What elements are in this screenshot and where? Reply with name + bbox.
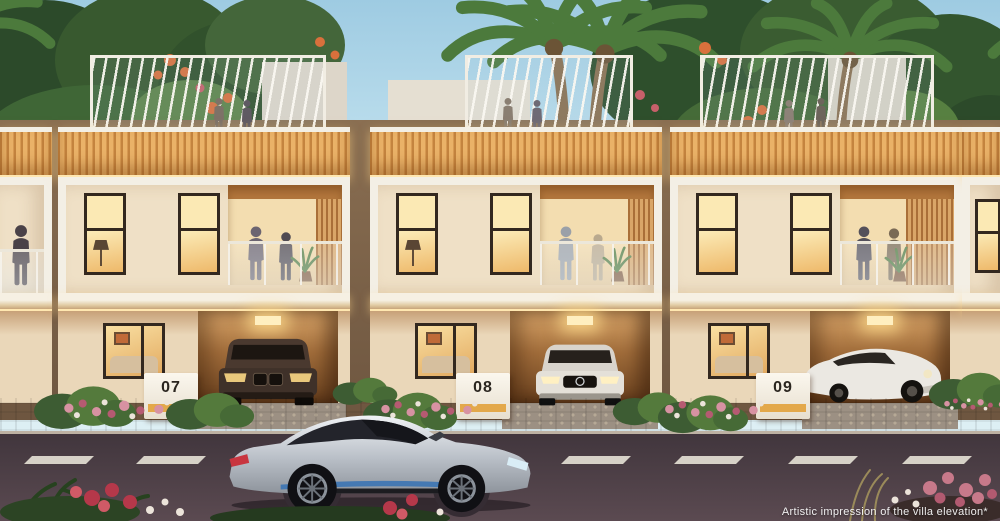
upper-floor bbox=[370, 177, 662, 293]
carport-light bbox=[255, 316, 281, 325]
balcony bbox=[540, 185, 654, 285]
upper-window-right bbox=[790, 193, 832, 275]
upper-window-left bbox=[84, 193, 126, 275]
rooftop-pergola bbox=[465, 55, 633, 127]
wood-fascia bbox=[962, 127, 1000, 177]
glass-railing bbox=[840, 241, 954, 285]
upper-window bbox=[975, 199, 1000, 273]
upper-floor bbox=[670, 177, 962, 293]
floor-divider bbox=[0, 293, 52, 311]
wood-fascia bbox=[0, 127, 52, 177]
upper-floor bbox=[962, 177, 1000, 293]
disclaimer-caption: Artistic impression of the villa elevati… bbox=[782, 506, 988, 518]
upper-floor bbox=[58, 177, 350, 293]
foreground-flowers-left bbox=[0, 450, 520, 521]
upper-window-right bbox=[178, 193, 220, 275]
glass-railing bbox=[540, 241, 654, 285]
balcony bbox=[840, 185, 954, 285]
floor-divider bbox=[670, 293, 962, 311]
floor-lamp bbox=[405, 240, 421, 266]
upper-window-left bbox=[396, 193, 438, 275]
wood-fascia bbox=[370, 127, 662, 177]
floor-divider bbox=[370, 293, 662, 311]
balcony bbox=[228, 185, 342, 285]
carport-light bbox=[867, 316, 893, 325]
carport-light bbox=[567, 316, 593, 325]
glass-railing bbox=[0, 249, 44, 293]
upper-floor bbox=[0, 177, 52, 293]
lane-marking bbox=[561, 456, 631, 464]
lane-marking bbox=[674, 456, 744, 464]
upper-window-right bbox=[490, 193, 532, 275]
wood-fascia bbox=[670, 127, 962, 177]
floor-divider bbox=[58, 293, 350, 311]
upper-window-left bbox=[696, 193, 738, 275]
villa-elevation-render: 07 bbox=[0, 0, 1000, 521]
floor-lamp bbox=[93, 240, 109, 266]
floor-divider bbox=[962, 293, 1000, 311]
wood-fascia bbox=[58, 127, 350, 177]
glass-railing bbox=[228, 241, 342, 285]
